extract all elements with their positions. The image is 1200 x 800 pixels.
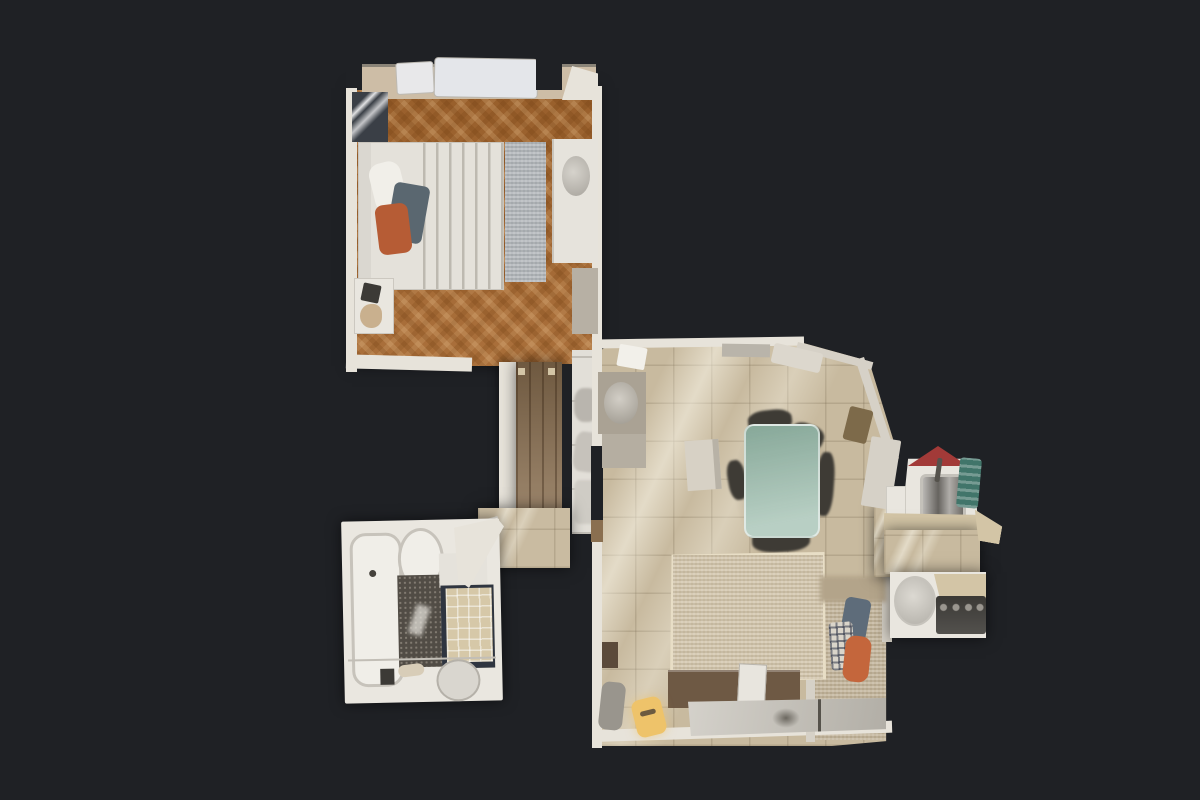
- washing-machine: [436, 659, 481, 702]
- corner-cabinet: [602, 434, 646, 468]
- bedroom-wall-bottom: [346, 354, 472, 371]
- console-divider: [818, 698, 821, 736]
- dresser-bowl: [562, 156, 590, 196]
- kitchen-appliance: [894, 576, 936, 626]
- room-corridor-floor[interactable]: [516, 362, 562, 514]
- desk-chair: [598, 681, 627, 731]
- nightstand-object-dark: [360, 282, 381, 303]
- window-unit-small: [395, 61, 435, 95]
- corner-washbasin-bowl: [604, 382, 638, 424]
- nightstand-basket: [360, 304, 382, 328]
- stove: [936, 596, 986, 634]
- bed-throw: [374, 202, 413, 256]
- ceiling-beam: [722, 344, 770, 358]
- wall-mirror: [352, 92, 388, 142]
- yellow-chair-slot: [640, 708, 657, 717]
- area-rug: [670, 552, 826, 682]
- counter-object-beige: [398, 663, 425, 678]
- teal-towel: [956, 457, 982, 509]
- counter-object-dark: [380, 669, 394, 685]
- side-cabinet: [572, 268, 598, 334]
- door-hinge-2: [548, 368, 555, 375]
- corridor-wall-left: [499, 362, 516, 515]
- room-kitchen-floor[interactable]: [884, 530, 980, 574]
- mosaic-floor: [397, 575, 443, 668]
- living-doorway-threshold: [591, 520, 603, 542]
- wall-notch-left: [346, 54, 362, 90]
- bed-headboard: [359, 143, 371, 289]
- sofa-throw-orange: [842, 635, 873, 683]
- mosaic-towel: [408, 604, 431, 637]
- corridor-gap: [562, 364, 572, 532]
- small-cabinet: [602, 642, 618, 668]
- sideboard-decor: [737, 663, 767, 706]
- bedroom-rug: [505, 142, 546, 282]
- wall-notch-top: [536, 54, 562, 90]
- dining-table-glass: [744, 424, 820, 538]
- paper-sheet: [616, 344, 647, 371]
- tub-drain: [369, 570, 376, 577]
- window-radiator: [434, 57, 539, 99]
- bed-duvet-folds: [423, 143, 503, 289]
- console-smudge: [772, 708, 800, 728]
- floorplan-canvas[interactable]: [0, 0, 1200, 800]
- door-hinge-1: [518, 368, 525, 375]
- bathtub: [349, 532, 404, 687]
- corner-washbasin: [598, 372, 646, 434]
- floor-box: [684, 439, 721, 491]
